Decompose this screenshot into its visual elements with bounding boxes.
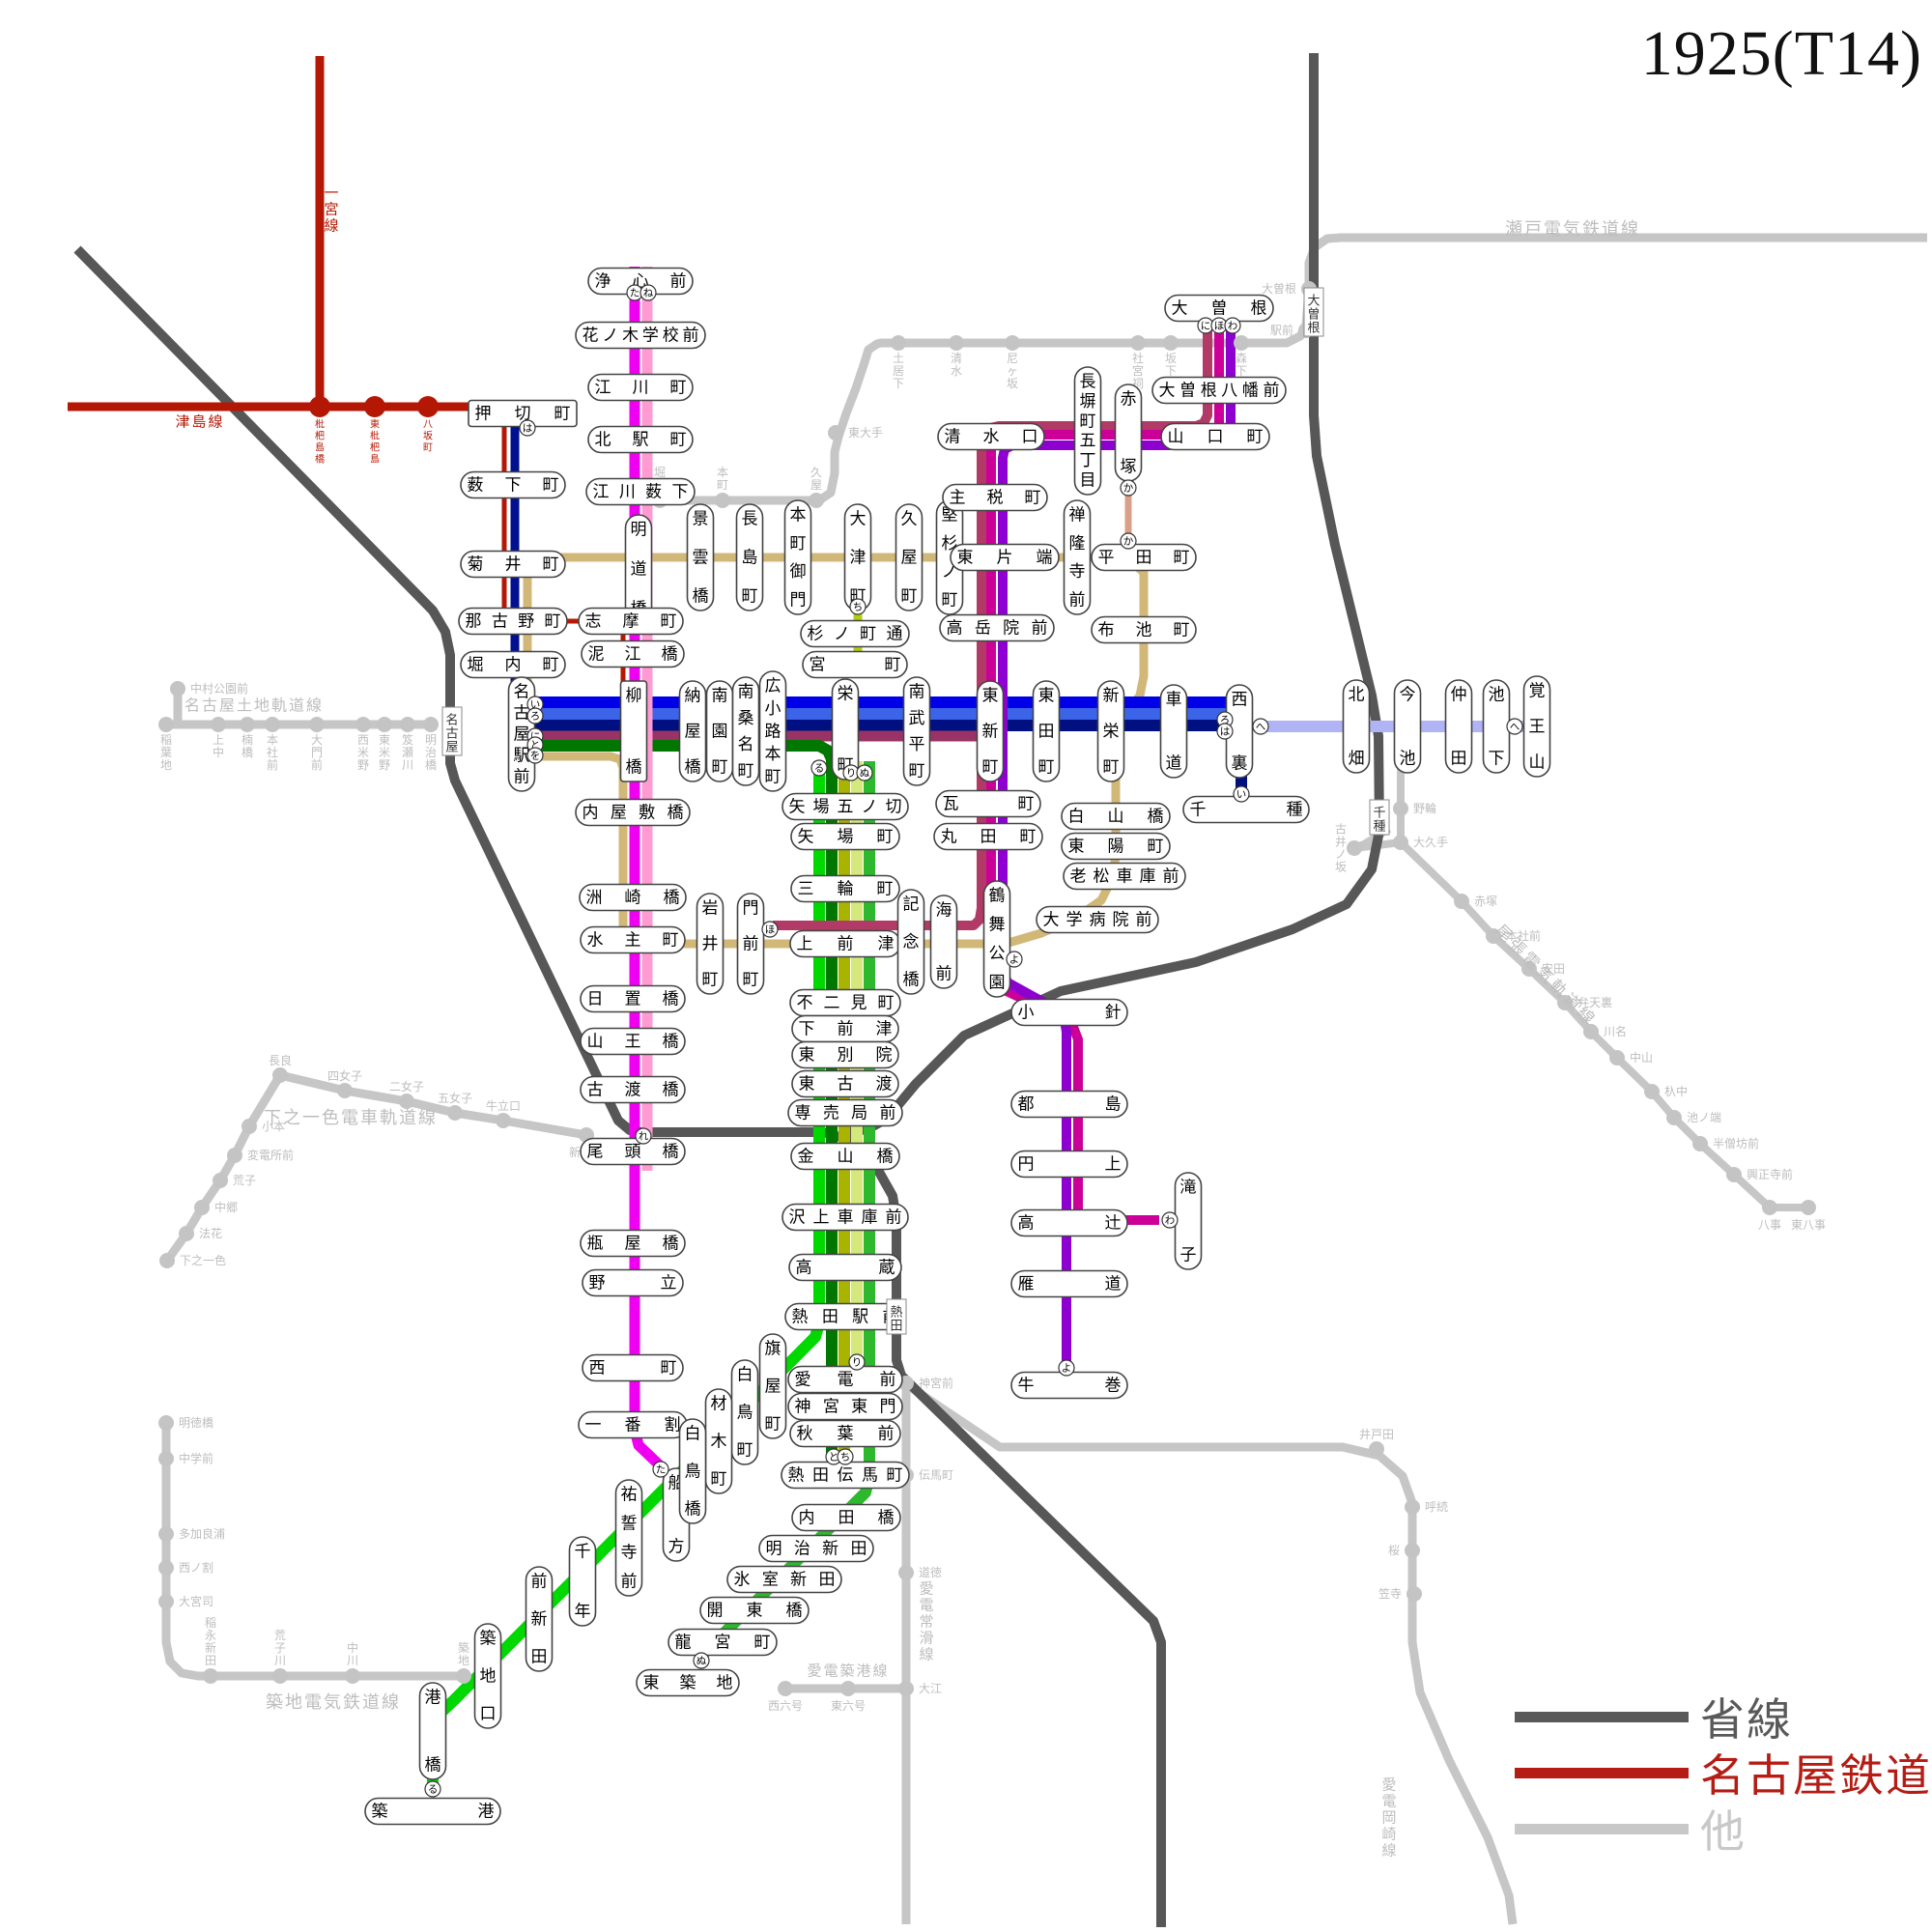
station-label: 志 xyxy=(585,612,602,631)
station-label: 本 xyxy=(765,745,781,763)
gray-station-dot xyxy=(949,335,964,351)
station-label: 江 xyxy=(593,483,610,501)
station-label: 町 xyxy=(738,762,754,781)
gray-station-dot xyxy=(179,1226,194,1241)
gray-station-label: 屋 xyxy=(810,478,822,492)
route-mark-char: た xyxy=(630,288,640,299)
station-大曽根八幡前: 大曽根八幡前 xyxy=(1152,378,1286,404)
station-label: 広 xyxy=(765,677,781,696)
station-label: 築 xyxy=(372,1803,388,1821)
station-大学病院前: 大学病院前 xyxy=(1037,907,1158,933)
red-line-label: 宮 xyxy=(324,202,338,218)
red-line-label: 橋 xyxy=(315,453,325,466)
station-label: 開 xyxy=(707,1602,724,1620)
station-柳橋: 柳橋 xyxy=(621,681,647,781)
station-label: 町 xyxy=(663,931,679,950)
station-label: 校 xyxy=(663,327,679,345)
gray-station-label: 米 xyxy=(357,746,369,759)
station-label: 堀 xyxy=(468,656,484,674)
gray-station-dot xyxy=(456,1668,471,1684)
gray-station-label: 門 xyxy=(311,746,323,759)
station-label: 橋 xyxy=(903,971,920,989)
gray-line-name: 線 xyxy=(919,1647,933,1663)
station-薮下町: 薮下町 xyxy=(461,472,565,498)
station-label: 都 xyxy=(1018,1095,1035,1114)
gray-station-dot xyxy=(159,1253,175,1268)
gray-station-dot xyxy=(355,717,371,732)
gray-station-label: 堀 xyxy=(654,465,666,479)
badge-label: 古 xyxy=(445,726,458,741)
gray-station-label: 田 xyxy=(205,1654,216,1667)
gray-station-label: 明徳橋 xyxy=(179,1415,213,1430)
station-label: 野 xyxy=(589,1274,606,1293)
station-label: 専 xyxy=(795,1104,811,1122)
station-label: 内 xyxy=(505,656,522,674)
station-label: 割 xyxy=(665,1416,681,1435)
station-海前: 海前 xyxy=(931,895,957,988)
route-mark-char: ち xyxy=(853,602,864,613)
legend-label: 名古屋鉄道線 xyxy=(1700,1741,1932,1804)
station-label: 一 xyxy=(585,1416,602,1435)
station-label: 田 xyxy=(838,1509,855,1527)
gray-station-dot xyxy=(1609,1050,1625,1065)
legend-item-1: 名古屋鉄道線 xyxy=(1515,1745,1920,1801)
route-mark-char: ね xyxy=(643,288,654,299)
station-label: 古 xyxy=(838,1075,854,1094)
station-広小路本町: 広小路本町 xyxy=(760,671,786,791)
station-label: 平 xyxy=(909,735,925,753)
gray-station-label: 楠 xyxy=(241,732,253,747)
station-金山橋: 金山橋 xyxy=(791,1144,899,1170)
station-築港: 築港 xyxy=(365,1799,500,1825)
route-mark-ろ: ろ xyxy=(527,708,543,724)
gray-station-dot xyxy=(898,1565,914,1580)
station-label: 場 xyxy=(838,828,854,846)
station-記念橋: 記念橋 xyxy=(898,890,924,994)
route-mark-char: は xyxy=(1220,726,1231,738)
station-label: 渡 xyxy=(625,1081,641,1099)
station-label: 番 xyxy=(625,1416,641,1435)
station-label: 田 xyxy=(812,1466,829,1485)
gray-station-dot xyxy=(840,1681,856,1696)
station-label: 西 xyxy=(1232,691,1248,709)
station-label: 上 xyxy=(813,1208,830,1227)
station-材木町: 材木町 xyxy=(706,1389,732,1493)
route-mark-char: か xyxy=(1123,483,1134,495)
station-label: 丁 xyxy=(1080,451,1096,469)
station-label: 誓 xyxy=(621,1515,638,1533)
station-label: 下 xyxy=(799,1020,815,1038)
station-label: 白 xyxy=(737,1366,753,1384)
station-label: 摩 xyxy=(623,612,639,631)
station-label: 町 xyxy=(982,758,999,777)
station-杉ノ町通: 杉ノ町通 xyxy=(801,621,909,647)
station-label: 町 xyxy=(742,587,758,606)
station-label: 前 xyxy=(1032,619,1048,638)
station-那古野町: 那古野町 xyxy=(459,609,567,635)
station-label: 押 xyxy=(475,405,492,423)
gray-station-label: 笠寺 xyxy=(1378,1586,1402,1601)
station-label: 院 xyxy=(876,1046,893,1065)
station-label: 公 xyxy=(989,945,1006,963)
station-label: 町 xyxy=(901,587,918,606)
gray-station-label: 興正寺前 xyxy=(1747,1167,1793,1181)
gray-station-label: 野輪 xyxy=(1413,801,1436,815)
station-label: 清 xyxy=(945,428,961,446)
gray-station-label: 荒子 xyxy=(233,1174,256,1187)
station-愛電前: 愛電前 xyxy=(788,1367,902,1393)
station-白鳥町: 白鳥町 xyxy=(732,1360,758,1464)
route-mark-char: よ xyxy=(1062,1363,1072,1375)
gray-station-label: 古 xyxy=(1335,822,1347,837)
station-label: 鶴 xyxy=(989,887,1006,905)
station-label: 馬 xyxy=(862,1466,878,1485)
station-label: 山 xyxy=(838,1148,854,1166)
route-mark-ね: ね xyxy=(640,285,656,300)
route-mark-は: は xyxy=(520,420,535,436)
station-label: 池 xyxy=(1400,750,1416,768)
badge-label: 屋 xyxy=(445,740,458,754)
route-mark-char: に xyxy=(1201,321,1211,332)
station-秋葉前: 秋葉前 xyxy=(790,1421,900,1447)
station-栄町: 栄町 xyxy=(833,679,859,780)
gray-station-dot xyxy=(423,717,439,732)
gray-station-label: 宮 xyxy=(1132,363,1144,378)
station-label: 瓦 xyxy=(943,795,959,813)
station-label: 旗 xyxy=(765,1340,781,1358)
route-mark-は: は xyxy=(1217,724,1233,739)
station-label: 崎 xyxy=(625,889,641,907)
station-label: 景 xyxy=(693,510,709,528)
station-label: 小 xyxy=(1018,1004,1035,1022)
red-line-label: 枇 xyxy=(315,418,325,431)
station-label: 屋 xyxy=(685,723,701,741)
station-label: 久 xyxy=(901,510,918,528)
gray-station-label: 稲 xyxy=(160,733,172,747)
red-station-dot-yasakacho xyxy=(417,396,439,417)
gray-station-label: 中 xyxy=(347,1640,358,1655)
station-label: 日 xyxy=(587,990,604,1009)
gray-station-dot xyxy=(1801,1200,1816,1215)
station-label: 港 xyxy=(478,1803,495,1821)
route-mark-char: わ xyxy=(1228,321,1238,332)
gray-station-label: 呼続 xyxy=(1425,1500,1448,1514)
station-label: 口 xyxy=(480,1705,497,1723)
station-label: 洲 xyxy=(586,889,603,907)
station-東築地: 東築地 xyxy=(637,1670,739,1696)
station-label: 渡 xyxy=(876,1075,893,1094)
station-label: 田 xyxy=(819,1571,836,1589)
station-label: 祐 xyxy=(621,1486,638,1504)
station-label: 山 xyxy=(1108,808,1124,826)
transit-map-1925: 一宮線津島線枇杷島橋東枇杷島八坂町堀川本町久屋東大手土居下清水尼ヶ坂社宮祠坂下森… xyxy=(0,0,1932,1932)
station-label: 町 xyxy=(554,405,571,423)
station-築地口: 築地口 xyxy=(475,1624,501,1728)
station-古渡橋: 古渡橋 xyxy=(581,1077,685,1103)
station-label: 町 xyxy=(1103,758,1120,777)
station-清水口: 清水口 xyxy=(938,424,1044,450)
map-title: 1925(T14) xyxy=(1641,17,1922,91)
station-label: 南 xyxy=(712,687,728,705)
station-label: 畑 xyxy=(1349,750,1365,768)
station-label: 東 xyxy=(957,549,974,567)
gray-station-label: 中村公園前 xyxy=(190,681,248,696)
station-label: 輪 xyxy=(838,880,854,898)
red-line-label: 島 xyxy=(315,441,325,454)
station-label: 前 xyxy=(880,1104,896,1122)
station-雁道: 雁道 xyxy=(1011,1271,1127,1297)
station-label: 秋 xyxy=(797,1425,813,1443)
gray-station-dot xyxy=(891,335,906,351)
gray-station-dot xyxy=(272,1067,288,1083)
station-label: 町 xyxy=(1247,428,1264,446)
station-門前町: 門前町 xyxy=(738,894,764,994)
station-label: 塚 xyxy=(1121,458,1137,476)
station-新栄町: 新栄町 xyxy=(1098,681,1124,781)
station-label: 滝 xyxy=(1180,1179,1197,1197)
gray-line-name: 尾張電気軌道線 xyxy=(1492,922,1600,1030)
station-覚王山: 覚王山 xyxy=(1524,676,1550,777)
station-label: 主 xyxy=(625,931,641,950)
station-label: 町 xyxy=(878,994,895,1012)
station-label: 小 xyxy=(765,699,781,718)
station-label: 町 xyxy=(790,534,807,553)
station-label: 名 xyxy=(514,683,530,701)
route-mark-り: り xyxy=(849,1354,865,1370)
station-label: 白 xyxy=(1068,808,1085,826)
station-label: 内 xyxy=(799,1509,815,1527)
station-label: 町 xyxy=(887,1466,903,1485)
station-専売局前: 専売局前 xyxy=(788,1100,902,1126)
station-白鳥橋: 白鳥橋 xyxy=(680,1419,706,1523)
gray-station-label: 神宮前 xyxy=(919,1376,953,1390)
gray-line-name: 崎 xyxy=(1381,1827,1396,1843)
station-label: 寺 xyxy=(1069,562,1086,581)
station-label: 矢 xyxy=(798,828,814,846)
station-仲田: 仲田 xyxy=(1446,680,1472,773)
station-label: 前 xyxy=(531,1573,548,1591)
station-label: 幡 xyxy=(1242,382,1259,400)
station-今池: 今池 xyxy=(1395,680,1421,773)
route-mark-char: へ xyxy=(1256,722,1266,733)
station-label: 花 xyxy=(582,327,599,345)
station-label: 水 xyxy=(983,428,1000,446)
station-label: 方 xyxy=(668,1538,685,1556)
red-station-dot-higashi-biwajima xyxy=(364,396,385,417)
jnr-badge-熱田: 熱田 xyxy=(887,1299,906,1334)
station-label: 念 xyxy=(903,932,920,952)
station-label: 島 xyxy=(742,549,758,567)
station-label: 今 xyxy=(1400,686,1416,704)
station-label: 田 xyxy=(1136,549,1152,567)
station-label: 院 xyxy=(1003,619,1019,638)
station-label: 山 xyxy=(1529,753,1546,772)
red-line-label: 一 xyxy=(324,185,338,202)
station-尾頭橋: 尾頭橋 xyxy=(581,1139,685,1165)
gray-station-label: 町 xyxy=(717,478,728,492)
route-mark-char: ち xyxy=(840,1452,851,1463)
station-label: 新 xyxy=(822,1540,838,1558)
gray-station-dot xyxy=(227,1148,242,1163)
gray-station-label: 大江 xyxy=(919,1682,942,1695)
station-label: 町 xyxy=(1174,549,1190,567)
station-label: 西 xyxy=(589,1359,606,1378)
station-label: 町 xyxy=(1148,838,1164,856)
gray-station-dot xyxy=(447,1105,463,1121)
gray-station-dot xyxy=(1393,835,1408,850)
gray-station-label: 下 xyxy=(1236,364,1247,378)
station-label: 雲 xyxy=(693,549,709,567)
station-label: 高 xyxy=(1018,1214,1035,1233)
station-label: 電 xyxy=(838,1371,854,1389)
station-label: 長 xyxy=(742,510,758,528)
legend-swatch xyxy=(1515,1768,1689,1778)
station-label: 王 xyxy=(1529,718,1546,736)
station-label: 港 xyxy=(425,1689,441,1707)
station-label: 町 xyxy=(543,656,559,674)
route-mark-char: ほ xyxy=(1214,321,1225,332)
gray-station-label: 治 xyxy=(425,746,437,759)
station-label: 町 xyxy=(711,1470,727,1489)
station-label: 町 xyxy=(885,656,901,674)
station-label: 江 xyxy=(595,379,611,397)
gray-line-name: 築地電気鉄道線 xyxy=(266,1692,401,1712)
station-label: 敷 xyxy=(639,804,655,822)
station-label: 町 xyxy=(942,591,958,610)
station-label: 駅 xyxy=(852,1308,868,1326)
station-label: 白 xyxy=(685,1425,701,1443)
station-label: 岩 xyxy=(702,899,719,918)
gray-station-label: 土 xyxy=(893,352,904,365)
station-label: 尾 xyxy=(587,1143,604,1161)
station-label: 新 xyxy=(982,723,999,741)
station-label: 町 xyxy=(545,612,561,631)
gray-station-dot xyxy=(211,717,226,732)
station-label: 鳥 xyxy=(737,1404,753,1422)
station-label: 宮 xyxy=(715,1634,731,1652)
station-label: 川 xyxy=(633,379,649,397)
station-水主町: 水主町 xyxy=(581,927,685,953)
station-日置橋: 日置橋 xyxy=(581,986,685,1012)
station-label: 口 xyxy=(1022,428,1038,446)
route-mark-char: り xyxy=(846,768,857,780)
gray-station-dot xyxy=(158,1526,174,1542)
gray-station-dot xyxy=(898,1681,914,1696)
gray-station-label: 中山 xyxy=(1630,1050,1653,1065)
gray-station-label: 半僧坊前 xyxy=(1713,1136,1759,1151)
station-label: 木 xyxy=(622,327,639,345)
gray-station-dot xyxy=(1762,1200,1777,1215)
route-mark-char: ほ xyxy=(765,924,776,936)
station-label: 橋 xyxy=(663,990,679,1009)
station-label: 金 xyxy=(798,1148,814,1166)
station-明治新田: 明治新田 xyxy=(759,1536,873,1562)
station-label: 町 xyxy=(765,768,781,786)
route-mark-へ: へ xyxy=(1253,719,1268,734)
station-label: 津 xyxy=(876,1020,893,1038)
station-label: 杉 xyxy=(808,625,824,643)
gray-station-label: 東 xyxy=(379,733,390,747)
station-label: 仲 xyxy=(1451,686,1467,704)
route-mark-ぬ: ぬ xyxy=(857,765,872,781)
station-野立: 野立 xyxy=(582,1270,683,1296)
station-label: 島 xyxy=(1105,1095,1122,1114)
station-label: 町 xyxy=(754,1634,771,1652)
station-label: 瓶 xyxy=(587,1235,604,1253)
gray-station-label: 坂 xyxy=(1335,861,1347,874)
station-label: 子 xyxy=(1180,1246,1197,1264)
gray-station-label: 荒 xyxy=(274,1629,286,1642)
station-不二見町: 不二見町 xyxy=(790,990,900,1016)
station-label: 木 xyxy=(711,1433,727,1451)
station-label: 年 xyxy=(575,1603,591,1621)
station-label: 町 xyxy=(877,880,894,898)
station-label: ノ xyxy=(602,327,618,345)
gray-station-label: 道徳 xyxy=(919,1565,942,1579)
station-label: 門 xyxy=(880,1398,896,1416)
station-label: 大 xyxy=(1043,911,1060,929)
gray-line-name: 電 xyxy=(1381,1794,1396,1810)
gray-station-dot xyxy=(1005,335,1020,351)
gray-station-label: 中郷 xyxy=(214,1200,238,1214)
station-label: 通 xyxy=(887,625,903,643)
route-mark-へ: へ xyxy=(1507,719,1522,734)
station-景雲橋: 景雲橋 xyxy=(688,504,714,611)
station-明道橋: 明道橋 xyxy=(626,515,652,623)
station-label: 浄 xyxy=(595,272,611,291)
gray-station-label: 上 xyxy=(213,733,224,747)
station-label: 八 xyxy=(1221,382,1237,400)
station-label: 橋 xyxy=(668,804,684,822)
station-老松車庫前: 老松車庫前 xyxy=(1064,864,1185,890)
gray-line-name: 愛 xyxy=(919,1581,933,1598)
station-label: 大 xyxy=(850,510,867,528)
gray-station-label: 地 xyxy=(458,1654,469,1667)
station-label: 橋 xyxy=(877,1148,894,1166)
legend-label: 省線 xyxy=(1700,1685,1793,1748)
gray-station-label: 下之一色 xyxy=(180,1254,226,1267)
station-label: 神 xyxy=(795,1398,811,1416)
station-label: 栄 xyxy=(1103,723,1120,741)
seto-electric-line xyxy=(660,238,1927,500)
gray-station-label: 川 xyxy=(347,1654,358,1667)
station-氷室新田: 氷室新田 xyxy=(727,1567,841,1593)
gray-line-name: 線 xyxy=(1381,1843,1396,1860)
red-line-label: 町 xyxy=(423,443,433,454)
station-山口町: 山口町 xyxy=(1161,424,1269,450)
gray-line-name: 岡 xyxy=(1381,1810,1396,1827)
station-高辻: 高辻 xyxy=(1011,1210,1127,1236)
station-label: 前 xyxy=(1264,382,1280,400)
gray-station-label: 野 xyxy=(379,758,390,772)
station-西町: 西町 xyxy=(582,1355,683,1381)
route-mark-char: ぬ xyxy=(860,768,870,780)
station-label: 田 xyxy=(1451,750,1467,768)
station-滝子: 滝子 xyxy=(1176,1173,1202,1269)
gray-station-label: 永 xyxy=(205,1629,216,1642)
station-label: 愛 xyxy=(795,1371,811,1389)
red-line-label: 枇 xyxy=(370,430,380,442)
station-label: 二 xyxy=(824,994,840,1012)
route-mark-れ: れ xyxy=(636,1128,651,1144)
gray-station-label: 東六号 xyxy=(831,1699,866,1713)
station-白山橋: 白山橋 xyxy=(1062,804,1170,830)
station-label: 町 xyxy=(737,1441,753,1460)
station-label: 隆 xyxy=(1069,534,1086,553)
station-label: 熱 xyxy=(792,1308,809,1326)
station-label: 橋 xyxy=(663,1235,679,1253)
station-label: 庫 xyxy=(1140,867,1156,886)
